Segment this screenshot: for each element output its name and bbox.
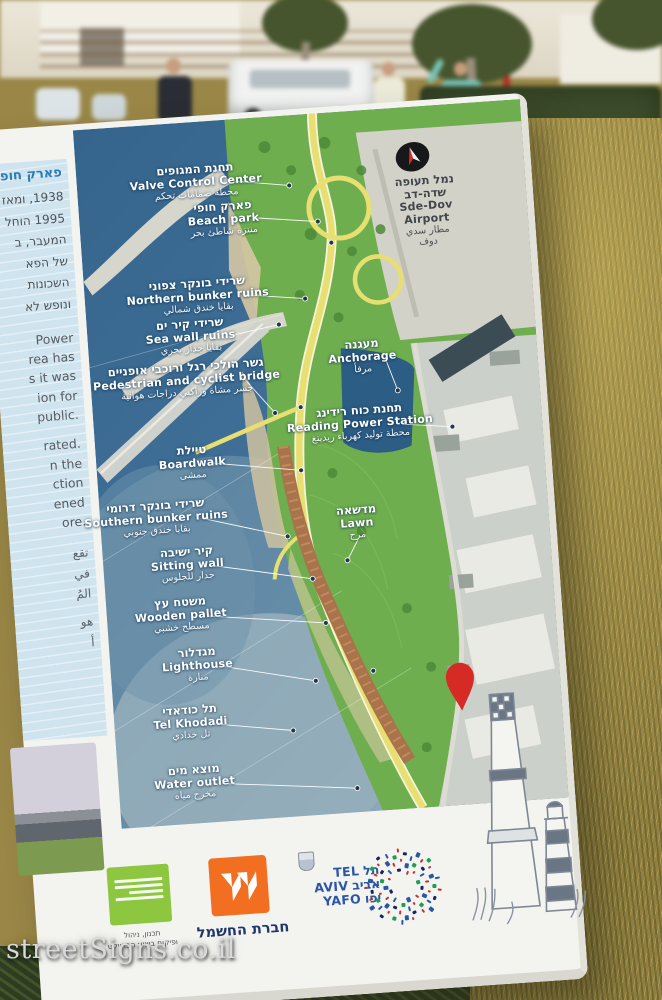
- tlv-dot: [364, 887, 367, 889]
- tlv-dot: [388, 911, 391, 915]
- tlv-dot: [389, 890, 393, 894]
- tlv-dot: [419, 859, 423, 863]
- tlv-dot: [406, 871, 409, 875]
- tlv-dot: [392, 863, 395, 867]
- tlv-dot: [377, 863, 381, 866]
- person: [158, 76, 192, 122]
- tlv-dot: [425, 881, 429, 884]
- tlv-dot: [393, 917, 397, 922]
- tlv-en: YAFO: [323, 892, 362, 908]
- tlv-dot: [378, 905, 383, 910]
- map-label-sdedov-ar: مطار سدي دوف: [396, 224, 459, 250]
- tlv-dot: [373, 873, 377, 876]
- tlv-dot: [369, 867, 374, 872]
- tlv-dot: [385, 903, 391, 909]
- tlv-dot: [393, 906, 397, 910]
- map-label-lighthouse: מגדלורLighthouseمنارة: [161, 643, 234, 686]
- tlv-dot: [374, 884, 379, 886]
- tlv-dot: [370, 890, 374, 894]
- map-label-anchorage: מעגנהAnchorageمرفأ: [327, 334, 398, 377]
- tlv-dot: [426, 857, 431, 862]
- tlv-dot: [412, 917, 415, 920]
- tlv-dot: [428, 866, 432, 869]
- tlv-dot: [370, 906, 376, 912]
- tlv-dot: [380, 879, 385, 883]
- tlv-dot: [435, 876, 440, 879]
- tlv-dot: [415, 852, 420, 858]
- van-windows: [248, 68, 352, 90]
- column-title-fragment: פארק חופ: [0, 165, 62, 185]
- tlv-dot: [433, 884, 437, 888]
- tlv-dot: [396, 848, 399, 852]
- landscape-firm-logo: [106, 864, 172, 926]
- tlv-dot: [393, 897, 397, 902]
- tlv-dot: [438, 889, 442, 891]
- sign-board: פארק חופ 1938, ומאז1995 הוחלהמעבר, בשל ה…: [0, 93, 588, 1000]
- map-label-telkhodadi: תל כודאדיTel Khodadiتل خدادي: [152, 700, 229, 743]
- tlv-dot: [385, 853, 389, 858]
- tlv-dot: [376, 856, 381, 861]
- tlv-dot: [420, 873, 425, 877]
- tlv-dot: [376, 899, 381, 904]
- map-label-wooden: משטח עץWooden palletمسطح خشبي: [134, 592, 228, 636]
- tlv-dot: [415, 880, 420, 884]
- column-english-text: Powerrea hass it wasion forpublic.rated.…: [0, 327, 87, 536]
- photo-of-park-sign: פארק חופ 1938, ומאז1995 הוחלהמעבר, בשל ה…: [0, 0, 662, 1000]
- person-head: [454, 62, 467, 76]
- map-label-water: מוצא מיםWater outletمخرج مياه: [153, 760, 236, 804]
- frag-ar-line: أ: [16, 632, 95, 658]
- watermark: streetSigns.co.il: [6, 934, 236, 965]
- column-arabic-text: تقعفيالمُهوأ: [10, 543, 95, 658]
- tlv-dot: [385, 896, 389, 900]
- column-hebrew-text: 1938, ומאז1995 הוחלהמעבר, בשל הפאהשכונות…: [0, 186, 72, 321]
- tlv-dot: [428, 906, 434, 912]
- tlv-dot: [368, 879, 374, 883]
- map-label-lawn: מדשאהLawnمرج: [336, 501, 379, 542]
- tel-aviv-yafo-logo: TELתלAVIVאביבYAFOיפו: [293, 836, 449, 942]
- tlv-dot: [415, 894, 419, 898]
- tlv-dot: [383, 886, 388, 890]
- tlv-dot: [402, 903, 406, 907]
- person-head: [382, 62, 395, 76]
- tlv-dot: [388, 869, 393, 874]
- map-label-seawall: שרידי קיר יםSea wall ruinsبقايا جدار بحر…: [144, 314, 236, 358]
- tlv-dot: [387, 878, 391, 881]
- tlv-dot: [422, 893, 428, 898]
- tlv-dot: [400, 858, 402, 861]
- frag-ar-line: المُ: [13, 583, 92, 609]
- tlv-dot: [403, 852, 407, 855]
- person: [36, 88, 80, 120]
- tlv-dot: [428, 873, 434, 878]
- tlv-dot: [397, 868, 401, 872]
- tlv-dot: [406, 897, 411, 903]
- tlv-dot: [380, 914, 385, 918]
- tlv-dot: [420, 886, 423, 890]
- tlv-dot: [380, 870, 384, 875]
- sign-footer: תכנון, ניהול ופיקוח ביצוע הפרויקט חברת ה…: [30, 797, 581, 1000]
- tlv-dot: [413, 870, 416, 874]
- tlv-dot: [369, 898, 373, 901]
- map-label-sitting: קיר ישיבהSitting wallجدار للجلوس: [150, 542, 226, 585]
- tlv-dot: [392, 855, 396, 860]
- tlv-dot: [421, 909, 425, 913]
- tlv-dot: [410, 856, 413, 861]
- tlv-dot: [412, 901, 415, 905]
- tlv-dot: [405, 915, 409, 920]
- map-label-boardwalk: טיילתBoardwalkممشى: [157, 441, 227, 484]
- tlv-dot: [419, 902, 424, 907]
- tlv-dot: [433, 895, 437, 899]
- tlv-dot: [413, 910, 417, 914]
- tlv-dot: [428, 890, 431, 893]
- map-label-sdedov: נמל תעופה שדה-דבSde-Dov Airportمطار سدي …: [393, 172, 460, 250]
- israel-electric-logo: [208, 855, 270, 917]
- tlv-dot: [401, 920, 403, 925]
- map-label-beach: פארק חופיBeach parkمنتزه شاطئ بحر: [186, 197, 260, 240]
- frag-en-line: public.: [0, 405, 79, 430]
- chimney-lighthouse-illustration: [450, 677, 596, 975]
- tlv-dots-swirl: [357, 840, 449, 932]
- tlv-dot: [420, 866, 425, 871]
- tlv-dot: [399, 911, 401, 915]
- tlv-dot: [384, 861, 390, 867]
- tlv-dot: [412, 863, 417, 868]
- tlv-dot: [378, 892, 381, 895]
- person-head: [166, 58, 181, 74]
- person: [92, 94, 126, 120]
- tlv-dot: [408, 907, 411, 912]
- tlv-dot: [427, 899, 432, 903]
- tlv-dot: [404, 863, 408, 868]
